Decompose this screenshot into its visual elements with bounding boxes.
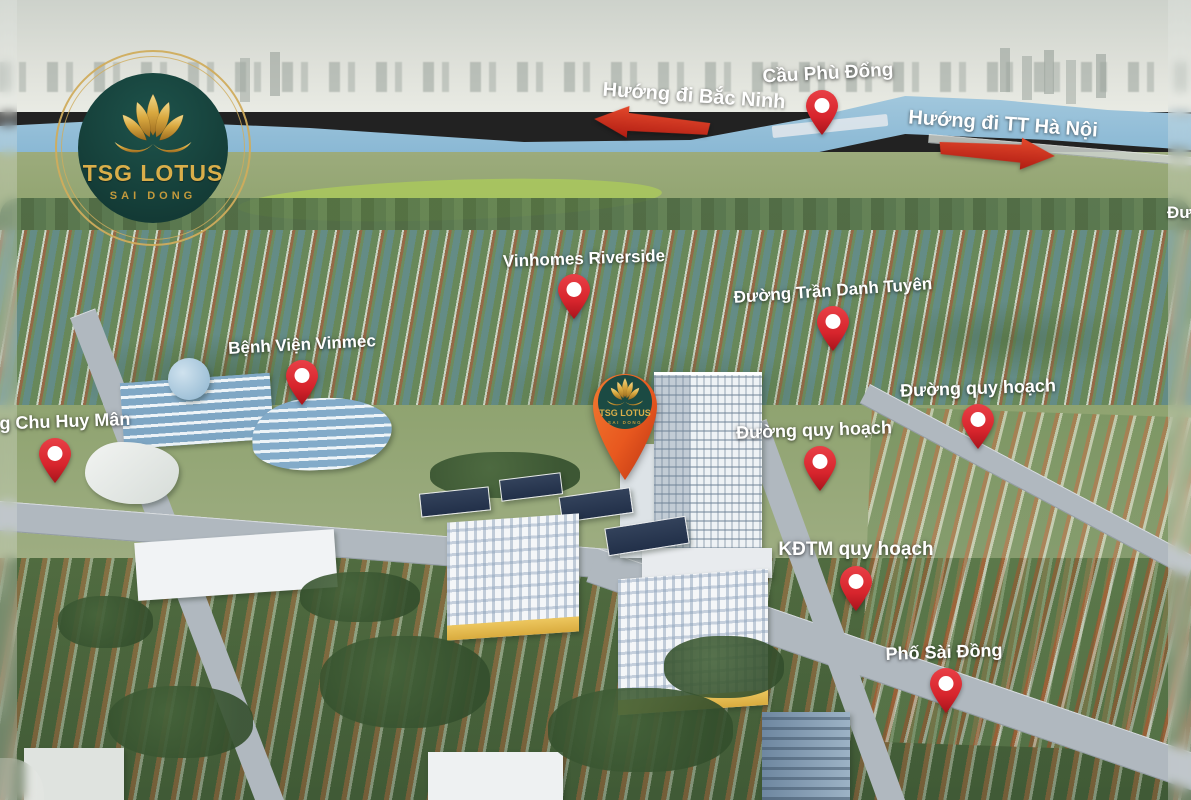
map-pin-icon: [802, 445, 838, 493]
project-pin-icon: TSG LOTUS SAI DONG: [589, 368, 661, 484]
lotus-icon: [110, 94, 196, 158]
map-pin-icon: [804, 89, 840, 137]
arrow-right-icon: [936, 128, 1058, 176]
clipped-road-label: Đư: [1167, 203, 1191, 223]
map-pin-label: Đường quy hoạch: [900, 375, 1056, 401]
project-pin-subtitle: SAI DONG: [608, 420, 642, 425]
brand-location: SAI DONG: [110, 190, 196, 202]
project-pin-title: TSG LOTUS: [599, 408, 651, 418]
map-pin-icon: [37, 437, 73, 485]
map-pin-label: Đường quy hoạch: [736, 417, 892, 443]
map-pin-icon: [838, 565, 874, 613]
map-pin-label: Phố Sài Đồng: [885, 640, 1003, 665]
map-pin-label: Đường Trần Danh Tuyên: [733, 274, 933, 308]
map-pin-label: KĐTM quy hoạch: [778, 539, 933, 561]
map-pin-icon: [556, 273, 592, 321]
logo-disc: TSG LOTUS SAI DONG: [78, 73, 228, 223]
map-pin-icon: [928, 667, 964, 715]
map-pin-label: Vinhomes Riverside: [503, 246, 666, 272]
brand-name: TSG LOTUS: [83, 160, 224, 187]
map-pin-label: Cầu Phù Đổng: [762, 60, 894, 89]
aerial-masterplan-poster: TSG LOTUS SAI DONG Hướng đi Bắc Ninh Hướ…: [0, 0, 1191, 800]
map-pin-icon: [284, 359, 320, 407]
map-pin-icon: [815, 305, 851, 353]
map-pin-label: Đường Chu Huy Mân: [0, 409, 131, 436]
map-pin-icon: [960, 403, 996, 451]
map-pin-label: Bệnh Viện Vinmec: [228, 331, 377, 359]
brand-logo: TSG LOTUS SAI DONG: [55, 50, 251, 246]
